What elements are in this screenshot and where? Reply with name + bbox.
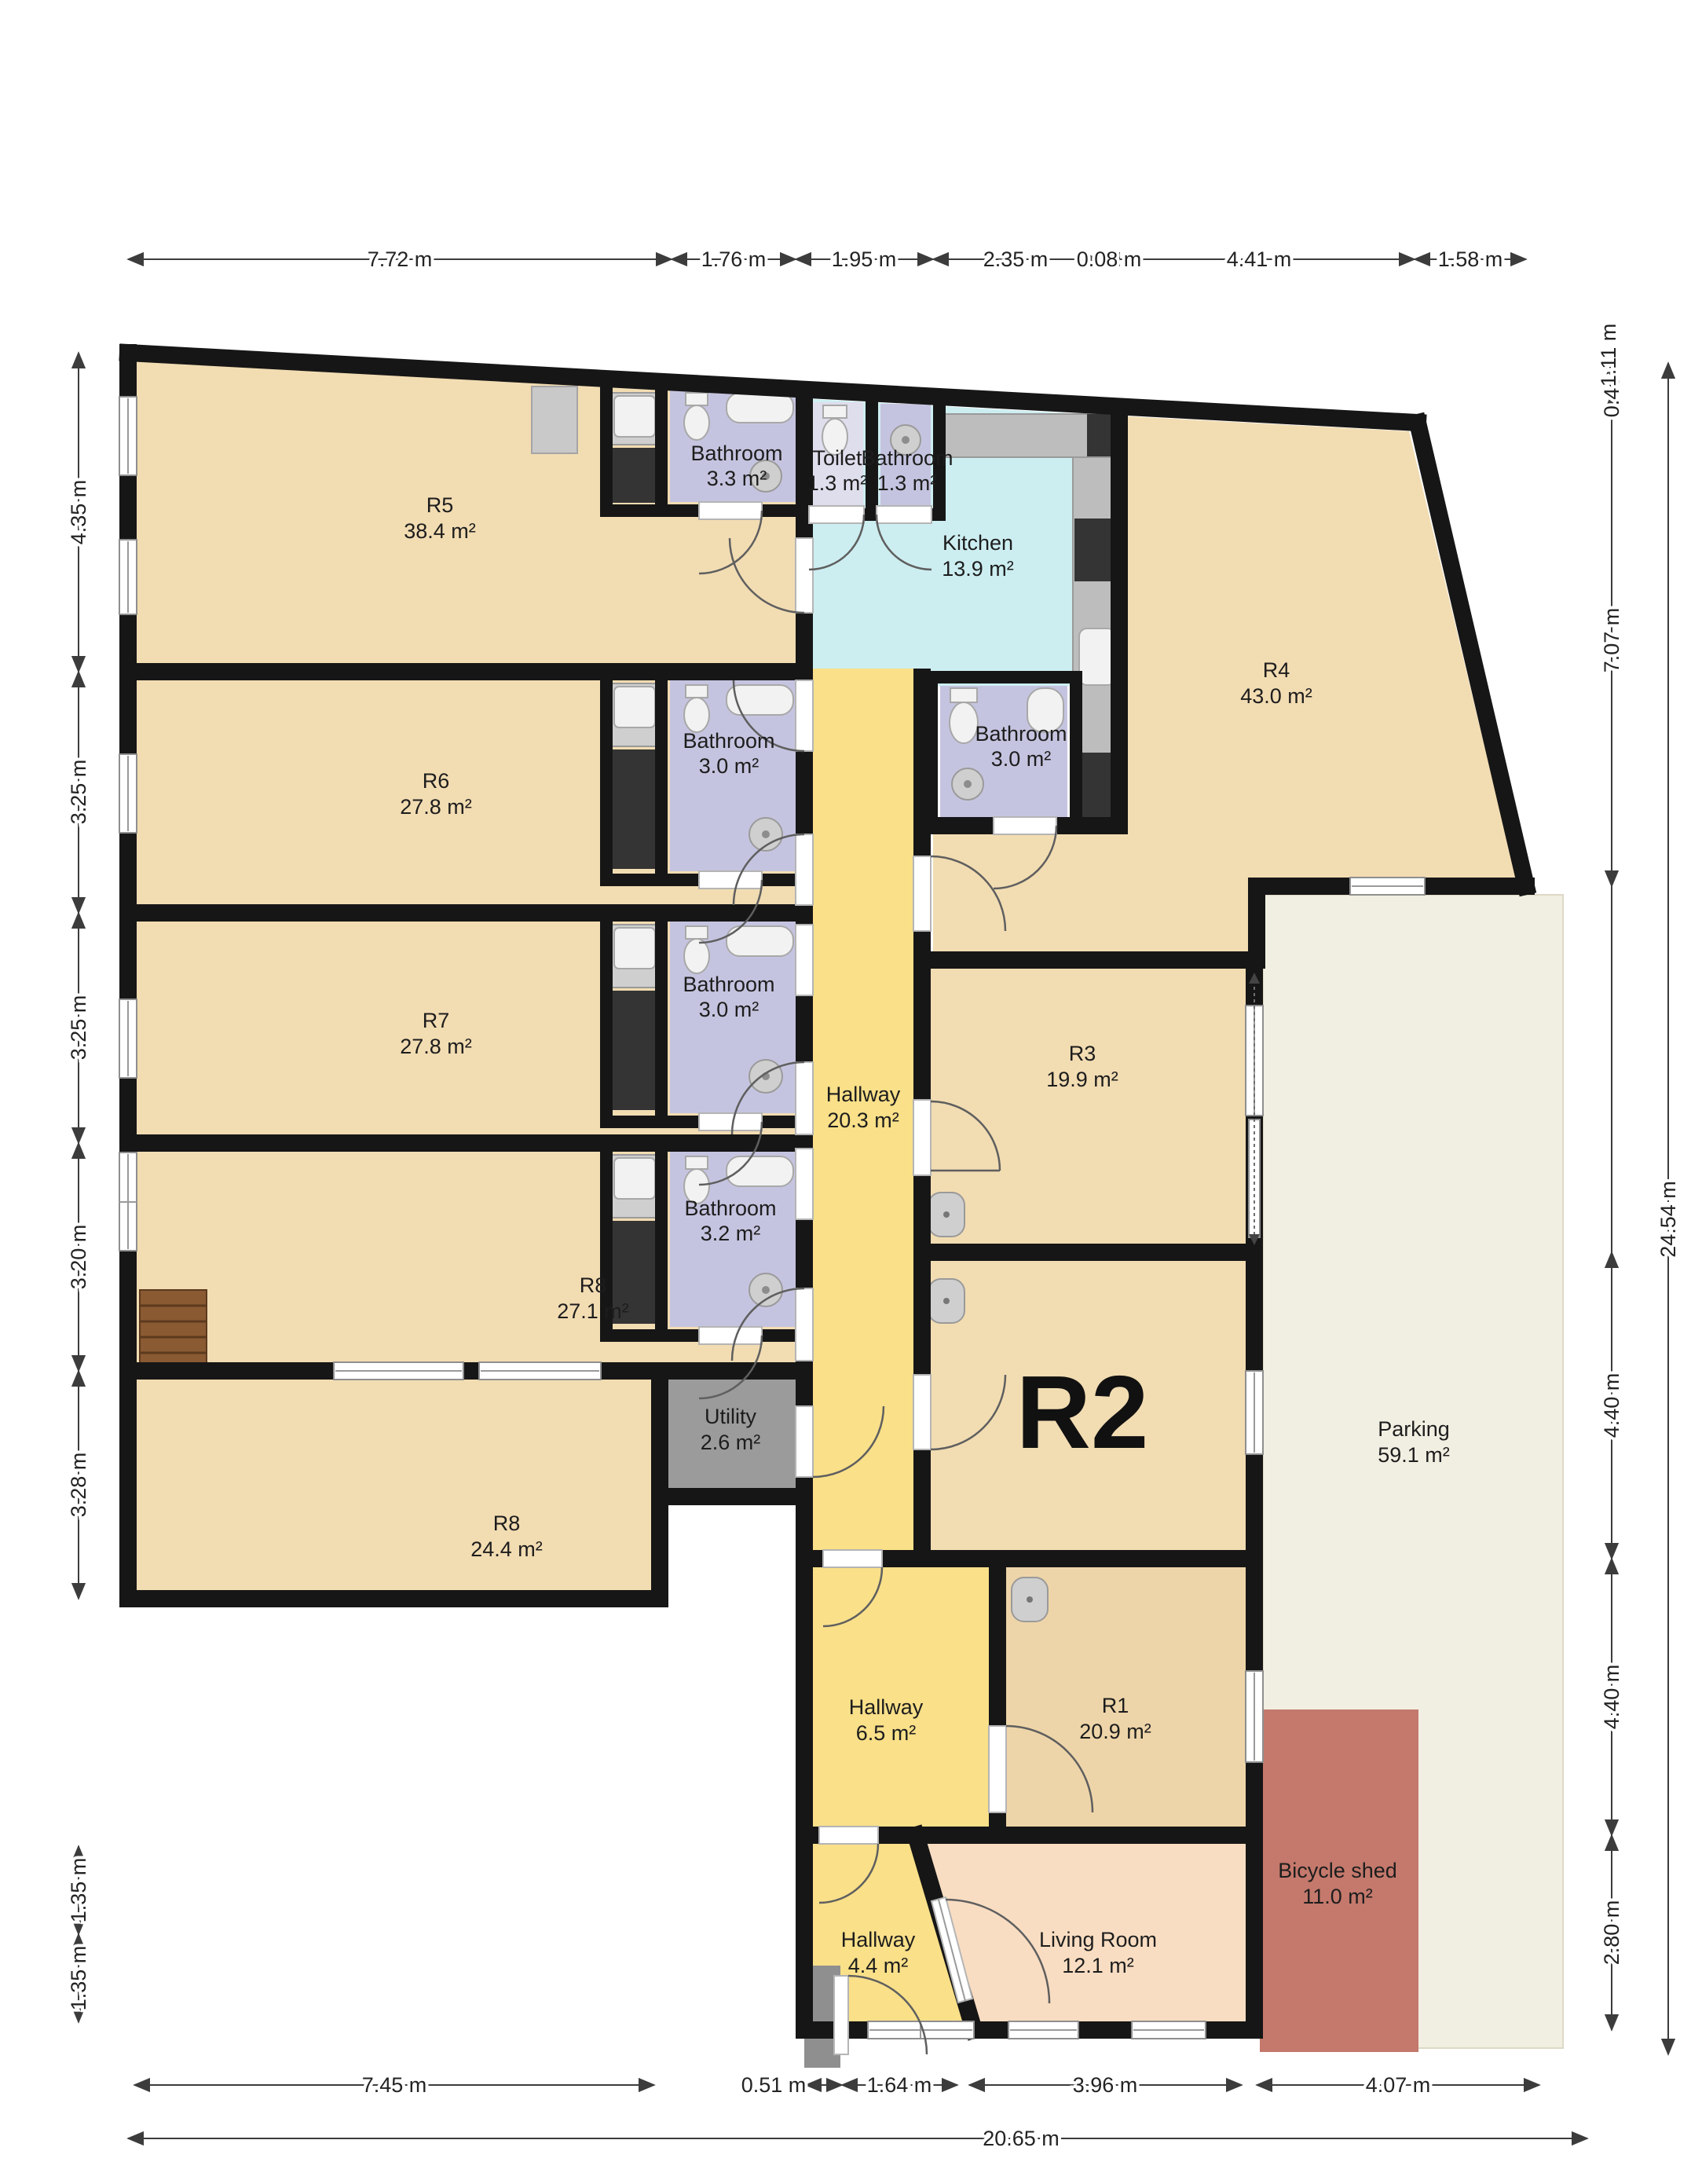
window-r7-left (119, 999, 137, 1078)
room-r8b-floor (137, 1380, 651, 1590)
label-r1-name: R1 (1102, 1694, 1129, 1717)
dim-top-5: 4.41 m (1227, 247, 1292, 271)
label-r6-name: R6 (423, 769, 450, 793)
window-r3-right (1246, 1006, 1263, 1116)
label-r3-name: R3 (1069, 1042, 1096, 1065)
label-r4-name: R4 (1263, 658, 1290, 682)
dim-top-3: 2.35 m (983, 247, 1049, 271)
label-hallway-main-area: 20.3 m² (827, 1108, 899, 1132)
closet-r7 (610, 925, 659, 1110)
closet-r8 (610, 1155, 659, 1324)
label-utility-name: Utility (705, 1405, 756, 1428)
dim-bottom-total: 20.65 m (128, 2127, 1587, 2150)
label-bathroom-r5-area: 3.3 m² (707, 467, 767, 490)
dim-left-5: 1.35 m (67, 1858, 90, 1923)
dim-right-2: 7.07 m (1600, 608, 1623, 673)
label-r2-name: R2 (1016, 1354, 1149, 1470)
dim-bottom-2: 1.64 m (867, 2073, 932, 2097)
dim-right-4: 4.40 m (1600, 1665, 1623, 1730)
label-toilet-area: 1.3 m² (807, 471, 868, 495)
dim-top-6: 1.58 m (1438, 247, 1503, 271)
dim-top-2: 1.95 m (832, 247, 897, 271)
dim-bottom-total-label: 20.65 m (983, 2127, 1060, 2150)
label-bathroom-r7-area: 3.0 m² (699, 998, 759, 1021)
closet-r5 (610, 393, 659, 503)
label-r3-area: 19.9 m² (1046, 1068, 1118, 1091)
door-bathroom-r8-hall (796, 1149, 813, 1219)
label-bathroom-r4-area: 3.0 m² (991, 747, 1052, 771)
window-r5-left-1 (119, 397, 137, 475)
window-bottom-2 (1008, 2021, 1078, 2039)
dim-left: 4.35 m 3.25 m 3.25 m 3.20 m 3.28 m 1.35 … (67, 353, 90, 2022)
label-r6-area: 27.8 m² (400, 795, 472, 819)
label-r5-name: R5 (426, 493, 454, 517)
door-bathroom-r7-hall (796, 925, 813, 995)
dim-right-1: 1.11 m (1597, 324, 1620, 387)
label-hallway-entry-name: Hallway (841, 1928, 916, 1951)
dim-right-total-label: 24.54 m (1656, 1181, 1680, 1258)
dim-bottom-0: 7.45 m (362, 2073, 427, 2097)
basin-r1 (1012, 1578, 1048, 1622)
label-r7-name: R7 (423, 1009, 450, 1032)
label-r8a-name: R8 (580, 1273, 607, 1297)
label-bathroom-small-area: 1.3 m² (877, 471, 938, 495)
basin-r3 (928, 1193, 964, 1237)
label-bicycle-shed-area: 11.0 m² (1302, 1885, 1373, 1908)
dim-right-total: 24.54 m (1656, 363, 1680, 2054)
label-hallway-mid-name: Hallway (849, 1695, 924, 1719)
dim-bottom-3: 3.96 m (1073, 2073, 1138, 2097)
dim-top-4: 0.08 m (1077, 247, 1142, 271)
label-r1-area: 20.9 m² (1079, 1720, 1151, 1743)
dim-left-6: 1.35 m (67, 1946, 90, 2011)
window-r4-bottom (1350, 878, 1425, 895)
dim-right-3: 4.40 m (1600, 1373, 1623, 1438)
window-r1-right (1246, 1671, 1263, 1762)
label-parking-name: Parking (1378, 1417, 1450, 1441)
label-utility-area: 2.6 m² (701, 1431, 761, 1454)
window-r5-left-2 (119, 540, 137, 614)
label-r8b-name: R8 (493, 1512, 521, 1535)
basin-r2 (928, 1279, 964, 1323)
label-kitchen-name: Kitchen (943, 531, 1013, 555)
window-r8-divider-2 (479, 1362, 601, 1380)
floor-plan-page: R5 38.4 m² Bathroom 3.3 m² Toilet 1.3 m²… (0, 0, 1702, 2184)
floor-plan-drawing: R5 38.4 m² Bathroom 3.3 m² Toilet 1.3 m²… (0, 0, 1702, 2184)
window-bottom-3 (1132, 2021, 1206, 2039)
label-bathroom-r8-area: 3.2 m² (701, 1222, 761, 1245)
dim-top-1: 1.76 m (701, 247, 767, 271)
room-r3-floor (931, 969, 1246, 1244)
dim-right-5: 2.80 m (1600, 1900, 1623, 1966)
dim-top-0: 7.72 m (368, 247, 433, 271)
closet-r6 (610, 683, 659, 869)
label-kitchen-area: 13.9 m² (942, 557, 1014, 581)
window-r6-left (119, 754, 137, 833)
chimney-block (532, 387, 577, 453)
label-bathroom-small-name: Bathroom (861, 446, 953, 470)
label-bathroom-r7-name: Bathroom (683, 973, 774, 996)
label-living-room-area: 12.1 m² (1062, 1954, 1134, 1977)
window-r8-divider-1 (334, 1362, 463, 1380)
label-toilet-name: Toilet (812, 446, 862, 470)
label-hallway-main-name: Hallway (826, 1083, 901, 1106)
label-bicycle-shed-name: Bicycle shed (1278, 1859, 1397, 1882)
dim-bottom: 7.45 m 0.51 m 1.64 m 3.96 m 4.07 m (134, 2073, 1539, 2097)
dim-left-3: 3.20 m (67, 1225, 90, 1290)
label-living-room-name: Living Room (1039, 1928, 1157, 1951)
label-hallway-entry-area: 4.4 m² (848, 1954, 909, 1977)
window-r8-left (119, 1152, 137, 1251)
window-r2-right (1246, 1371, 1263, 1454)
label-bathroom-r8-name: Bathroom (684, 1196, 776, 1220)
stairs (140, 1290, 207, 1367)
dim-left-2: 3.25 m (67, 995, 90, 1061)
label-bathroom-r5-name: Bathroom (690, 442, 782, 465)
label-bathroom-r6-area: 3.0 m² (699, 754, 759, 778)
label-bathroom-r4-name: Bathroom (975, 722, 1067, 746)
dim-bottom-1: 0.51 m (741, 2073, 807, 2097)
dim-left-4: 3.28 m (67, 1453, 90, 1518)
dim-left-1: 3.25 m (67, 760, 90, 825)
label-hallway-mid-area: 6.5 m² (856, 1721, 917, 1745)
label-bathroom-r6-name: Bathroom (683, 729, 774, 753)
label-r4-area: 43.0 m² (1240, 684, 1312, 708)
label-r5-area: 38.4 m² (404, 519, 476, 543)
label-parking-area: 59.1 m² (1378, 1443, 1450, 1467)
label-r8a-area: 27.1 m² (557, 1299, 629, 1323)
label-r7-area: 27.8 m² (400, 1035, 472, 1058)
dim-right: 0.46 m 1.11 m 7.07 m 4.40 m 4.40 m 2.80 … (1597, 324, 1623, 2030)
dim-bottom-4: 4.07 m (1366, 2073, 1431, 2097)
dim-left-0: 4.35 m (67, 480, 90, 545)
dim-top: 7.72 m 1.76 m 1.95 m 2.35 m 0.08 m 4.41 … (128, 247, 1526, 271)
label-r8b-area: 24.4 m² (470, 1537, 543, 1561)
